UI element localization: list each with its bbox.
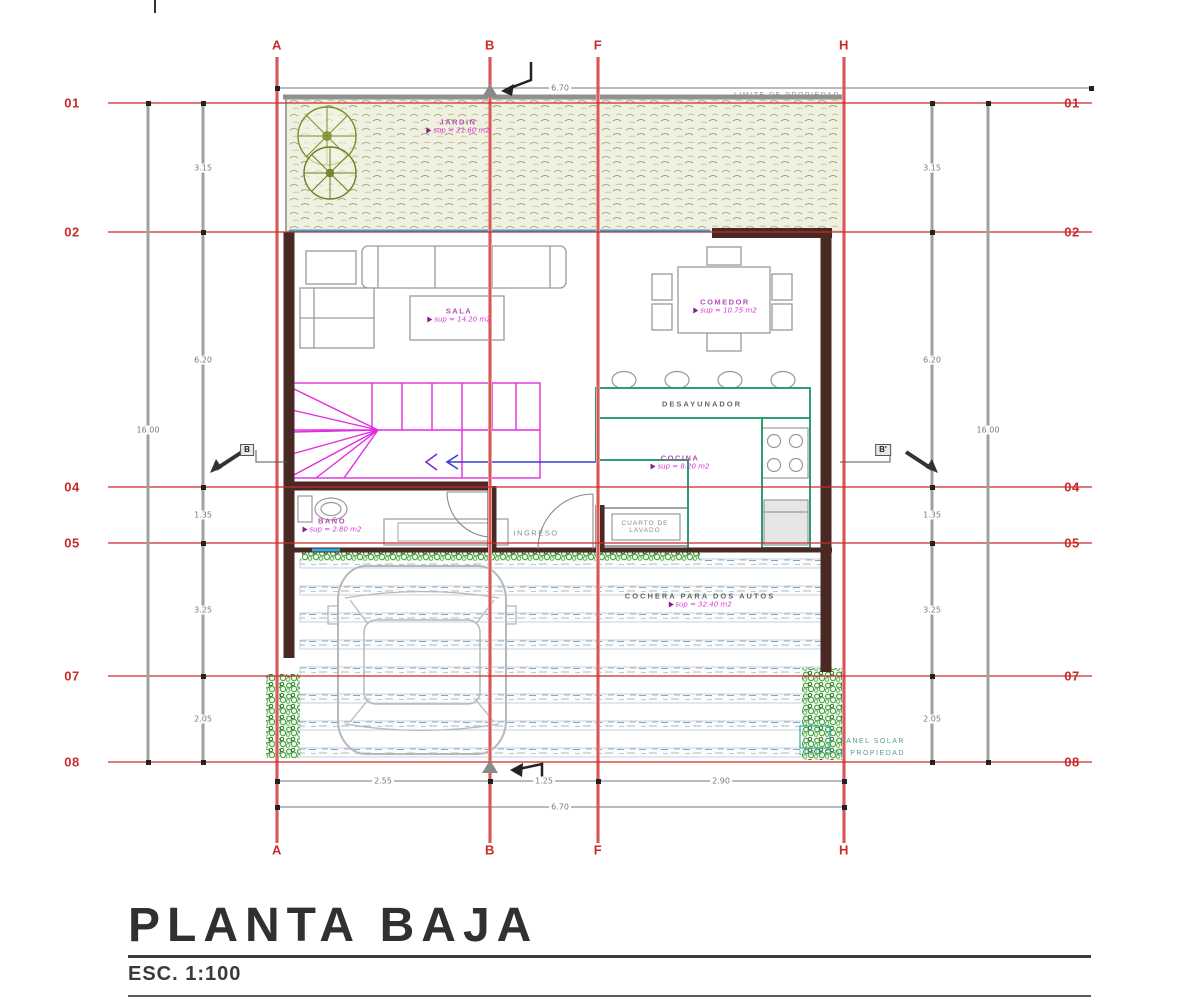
dimension-label: 1.25 [533, 777, 555, 786]
dimension-label: 6.20 [921, 356, 943, 365]
grid-row-label-02-left: 02 [64, 225, 79, 240]
title-underline [128, 955, 1091, 958]
room-label-cocina: COCINA sup = 8.20 m2 [651, 454, 710, 471]
dimension-label: 1.35 [192, 511, 214, 520]
grid-col-label-b-bottom: B [485, 843, 495, 858]
sala-furniture [300, 246, 566, 348]
grid-col-label-a-bottom: A [272, 843, 282, 858]
grid-row-label-08-left: 08 [64, 755, 79, 770]
solar-panel-note: PANEL SOLAR [745, 738, 905, 745]
garden-area [286, 99, 844, 231]
grid-col-label-h-bottom: H [839, 843, 849, 858]
room-label-ingreso: INGRESO [513, 529, 558, 538]
room-label-sala: SALA sup = 14.20 m2 [427, 307, 490, 324]
stair-direction-arrow [426, 454, 600, 470]
dimension-label: 2.55 [372, 777, 394, 786]
grid-row-label-01-left: 01 [64, 96, 79, 111]
room-label-jardin: JARDIN sup = 21.60 m2 [426, 118, 489, 135]
garden-tree-icon [304, 147, 356, 199]
grid-col-label-a-top: A [272, 38, 282, 53]
dimension-total-label: 16.00 [975, 426, 1002, 435]
dimension-label: 3.25 [192, 606, 214, 615]
page-title: PLANTA BAJA [128, 898, 538, 953]
room-label-lavado: CUARTO DE LAVADO [614, 520, 676, 534]
dimension-total-label: 16.00 [135, 426, 162, 435]
frame-tick [154, 0, 156, 13]
dimension-label: 6.20 [192, 356, 214, 365]
grid-row-label-01-right: 01 [1064, 96, 1079, 111]
room-label-comedor: COMEDOR sup = 10.75 m2 [693, 298, 756, 315]
grid-col-label-f-bottom: F [594, 843, 602, 858]
scale-note: ESC. 1:100 [128, 963, 241, 986]
dimension-label: 3.25 [921, 606, 943, 615]
property-line-note-top: LIMITE DE PROPIEDAD [700, 92, 840, 99]
dimension-label: 3.15 [921, 164, 943, 173]
grid-col-label-f-top: F [594, 38, 602, 53]
grid-row-label-07-right: 07 [1064, 669, 1079, 684]
dimension-total-label: 6.70 [549, 84, 571, 93]
room-label-bano: BAÑO sup = 2.80 m2 [303, 517, 362, 534]
dimension-label: 2.90 [710, 777, 732, 786]
grid-row-label-04-left: 04 [64, 480, 79, 495]
grid-row-label-04-right: 04 [1064, 480, 1079, 495]
floor-plan-canvas: A B F H A B F H 01 02 04 05 07 08 01 02 … [0, 0, 1200, 1000]
bottom-rule [128, 995, 1091, 997]
property-line-note-bottom: LIMITE DE PROPIEDAD [745, 750, 905, 757]
room-label-cochera: COCHERA PARA DOS AUTOS sup = 32.40 m2 [625, 592, 775, 609]
staircase [292, 383, 540, 478]
grid-row-label-08-right: 08 [1064, 755, 1079, 770]
grid-col-label-h-top: H [839, 38, 849, 53]
section-label-b-prime: B' [875, 444, 891, 456]
grid-col-label-b-top: B [485, 38, 495, 53]
section-label-b: B [240, 444, 254, 456]
dimension-label: 3.15 [192, 164, 214, 173]
dimension-label: 1.35 [921, 511, 943, 520]
dimension-label: 2.05 [192, 715, 214, 724]
grid-row-label-05-left: 05 [64, 536, 79, 551]
room-label-desayunador: DESAYUNADOR [662, 400, 742, 409]
grid-row-label-07-left: 07 [64, 669, 79, 684]
dimension-label: 2.05 [921, 715, 943, 724]
dimension-total-label: 6.70 [549, 803, 571, 812]
garage-paving [300, 559, 826, 757]
grid-row-label-05-right: 05 [1064, 536, 1079, 551]
grid-row-label-02-right: 02 [1064, 225, 1079, 240]
